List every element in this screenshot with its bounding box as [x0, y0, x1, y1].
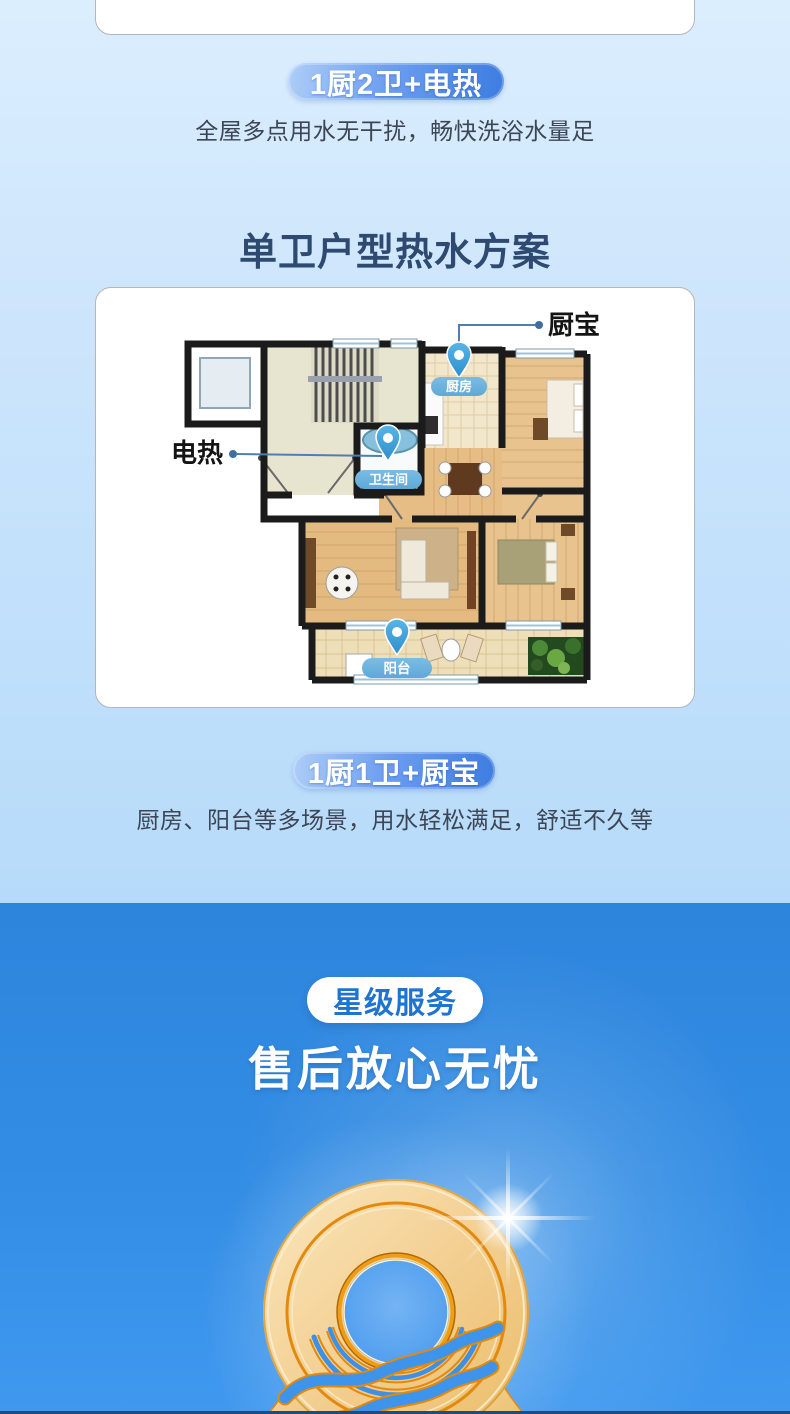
- section-heading-single-bath-plan: 单卫户型热水方案: [0, 221, 790, 276]
- callout-electric-heater-label: 电热: [171, 438, 223, 468]
- callout-kitchen-heater-label: 厨宝: [548, 310, 600, 340]
- room-label-balcony: 阳台: [384, 660, 411, 676]
- previous-card-bottom: [95, 0, 695, 35]
- badge-1-kitchen-1-bath: 1厨1卫+厨宝: [293, 752, 495, 789]
- floorplan-card: 厨宝 电热 厨房: [95, 287, 695, 708]
- callout-kitchen-heater: 厨宝: [459, 310, 600, 346]
- golden-eight-decoration: [0, 903, 790, 1414]
- leader-dot: [229, 450, 237, 458]
- room-label-bathroom: 卫生间: [369, 472, 408, 487]
- subtitle-multi-scene-water: 厨房、阳台等多场景，用水轻松满足，舒适不久等: [0, 801, 790, 835]
- floorplan-image: 厨宝 电热 厨房: [96, 288, 695, 708]
- service-section: 星级服务 售后放心无忧: [0, 903, 790, 1414]
- hot-water-section: 1厨2卫+电热 全屋多点用水无干扰，畅快洗浴水量足 单卫户型热水方案: [0, 0, 790, 903]
- subtitle-multi-point-water: 全屋多点用水无干扰，畅快洗浴水量足: [0, 112, 790, 146]
- badge-1-kitchen-2-bath: 1厨2卫+电热: [288, 63, 504, 100]
- room-label-kitchen: 厨房: [446, 379, 472, 394]
- product-detail-page: 1厨2卫+电热 全屋多点用水无干扰，畅快洗浴水量足 单卫户型热水方案: [0, 0, 790, 1414]
- leader-dot: [535, 321, 543, 329]
- elevator-shaft: [188, 344, 264, 424]
